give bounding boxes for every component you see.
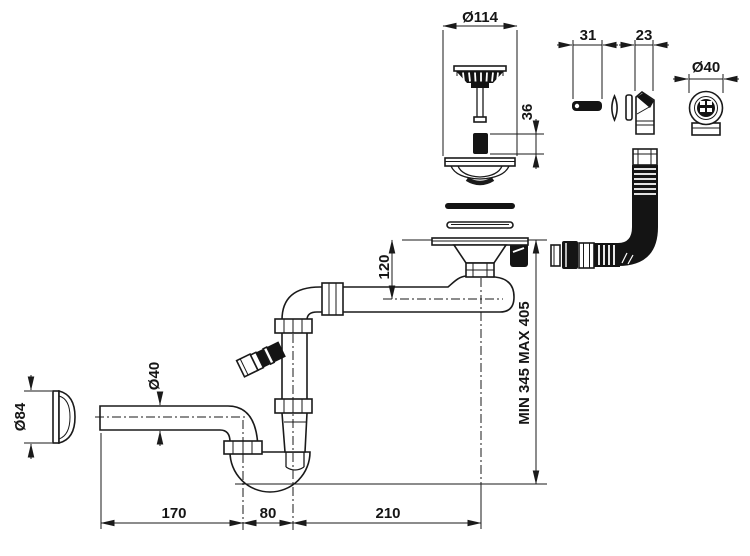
basket-plug — [473, 133, 488, 154]
overflow-washer-flat — [626, 95, 632, 120]
technical-drawing: Ø114 36 31 23 Ø40 120 — [0, 0, 750, 556]
rubber-gasket-bottom — [447, 222, 513, 228]
dim-label: Ø40 — [692, 59, 720, 76]
union-nut-trap — [224, 441, 262, 454]
hose-washer — [551, 245, 560, 266]
dim-label: 80 — [260, 505, 277, 522]
overflow-elbow-side — [636, 92, 654, 134]
overflow-washer-thin — [612, 96, 617, 120]
rubber-gasket-top — [445, 203, 515, 209]
overflow-seal — [572, 101, 602, 111]
dishwasher-branch — [237, 340, 286, 376]
hose-nut — [562, 241, 578, 269]
overflow-hose — [594, 149, 658, 267]
dim-connector-dia: Ø40 — [673, 59, 739, 93]
p-trap-bowl — [230, 452, 310, 492]
dim-pipe-dia: Ø40 — [146, 362, 163, 446]
sink-flange — [445, 158, 515, 183]
drain-body — [432, 238, 528, 277]
wall-escutcheon — [53, 391, 75, 443]
dim-label: 36 — [519, 104, 536, 121]
dim-label: 120 — [376, 254, 393, 279]
overflow-connector-end — [690, 92, 723, 136]
strainer-basket — [454, 66, 506, 122]
dim-label: 31 — [580, 27, 597, 44]
dim-label: Ø40 — [146, 362, 163, 390]
union-nut-upper — [275, 319, 312, 333]
hose-fitting — [579, 243, 594, 268]
dim-label: 170 — [161, 505, 186, 522]
dim-cap-dia: Ø84 — [12, 375, 52, 459]
dim-label: 23 — [636, 27, 653, 44]
union-nut-outlet — [322, 283, 343, 315]
dim-label: Ø114 — [462, 9, 499, 26]
dim-label: 210 — [375, 505, 400, 522]
siphon-installation-diagram: Ø114 36 31 23 Ø40 120 — [0, 0, 750, 556]
dim-elbow-width: 23 — [619, 27, 669, 91]
dim-label: MIN 345 MAX 405 — [516, 301, 533, 424]
dim-label: Ø84 — [12, 402, 29, 431]
dim-seal-width: 31 — [557, 27, 618, 99]
